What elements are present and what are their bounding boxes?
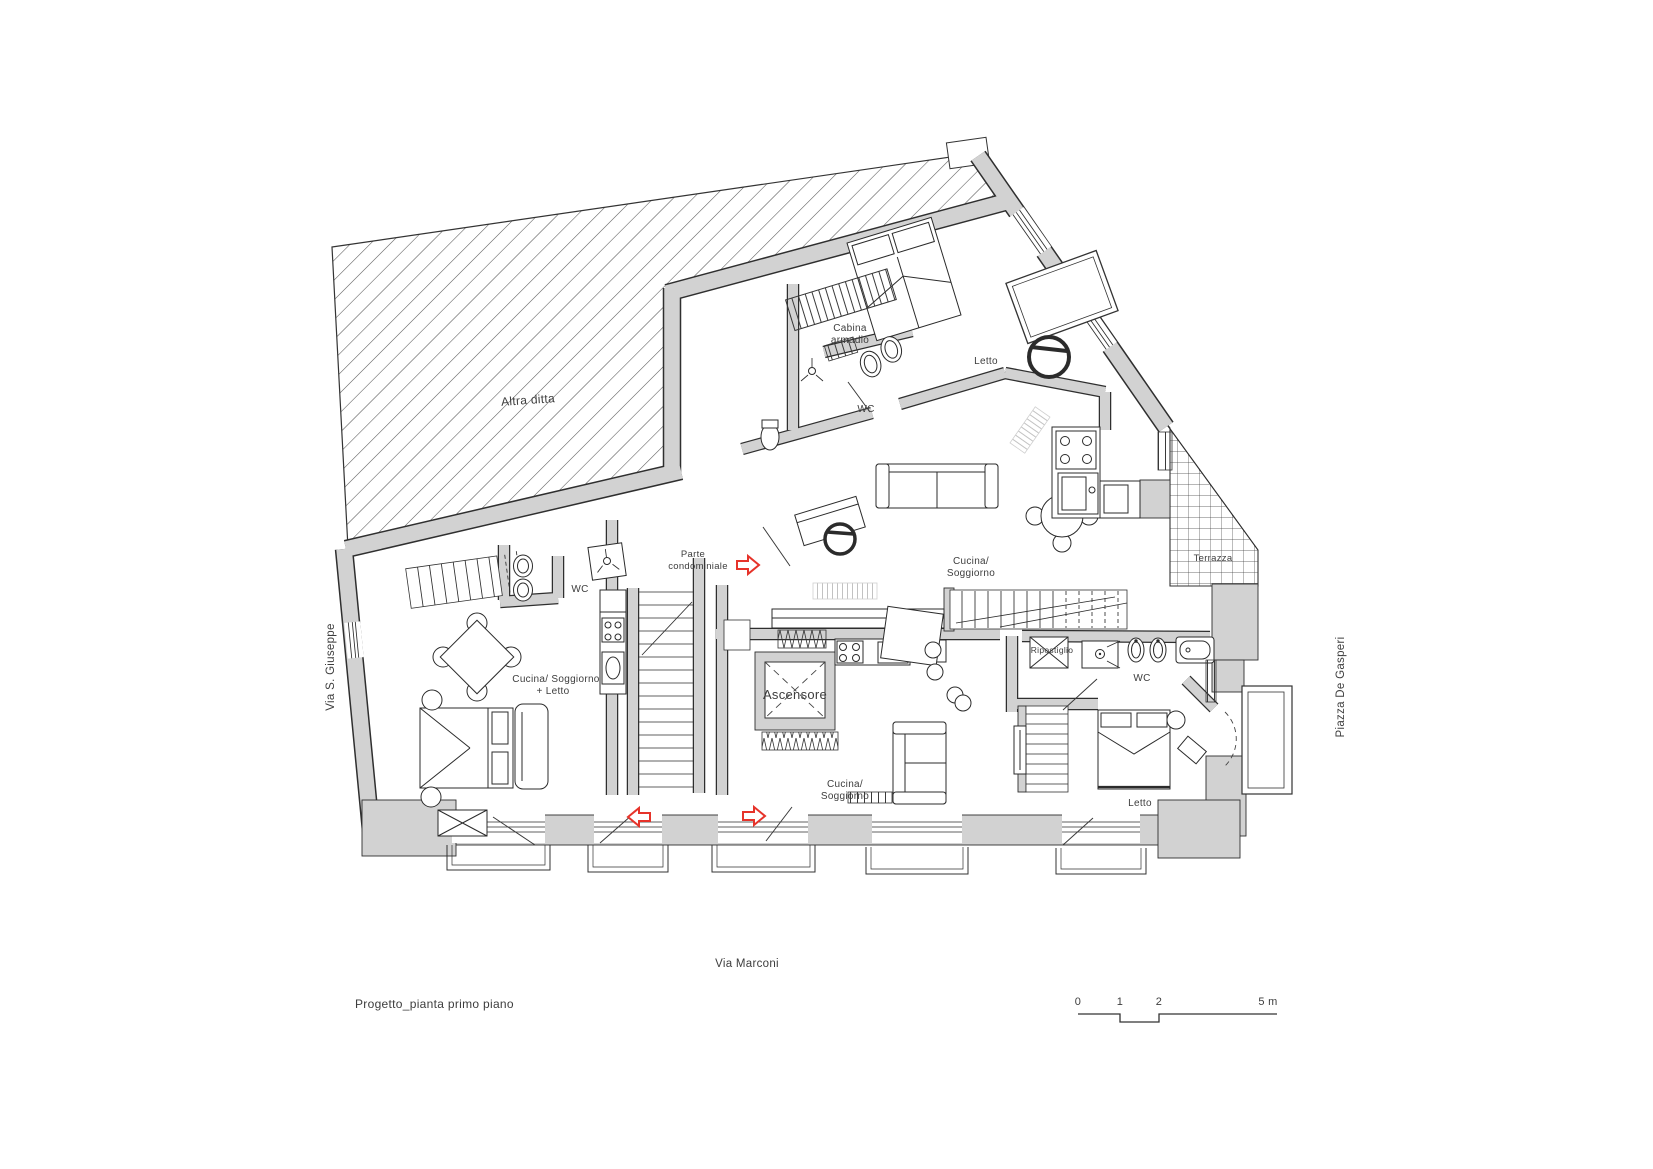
radiator — [1158, 432, 1172, 470]
room-label-wc-east: WC — [1133, 673, 1150, 684]
double-bed — [420, 708, 513, 788]
double-bed — [1098, 710, 1170, 789]
duplex-staircase-right — [950, 590, 1127, 629]
room-label-cucina-west-1: Cucina/ Soggiorno — [512, 674, 600, 685]
bedside-table — [421, 787, 441, 807]
room-label-ripostiglio: Ripostiglio — [1031, 645, 1074, 655]
main-staircase — [638, 592, 694, 787]
street-label-via-s-giuseppe: Via S. Giuseppe — [325, 623, 337, 710]
scale-tick-5m: 5 m — [1258, 996, 1277, 1008]
room-label-cucina-east-1: Cucina/ — [953, 556, 989, 567]
floor-plan-canvas: Altra ditta Cabina armadio Letto WC Part… — [0, 0, 1653, 1169]
room-label-cucina-south-1: Cucina/ — [827, 779, 863, 790]
toilet — [761, 420, 779, 450]
room-label-parte-condominiale-2: condominiale — [668, 561, 728, 572]
room-label-letto-ne: Letto — [974, 356, 998, 367]
chest-crossed — [438, 810, 487, 836]
room-label-cabina-armadio-1: Cabina — [833, 323, 867, 334]
desk — [1014, 726, 1026, 774]
bedside-table — [422, 690, 442, 710]
elevator — [724, 620, 838, 750]
armchair — [1029, 337, 1069, 377]
room-label-cucina-east-2: Soggiorno — [947, 568, 995, 579]
small-sofa — [515, 704, 548, 789]
room-label-terrazza: Terrazza — [1194, 553, 1233, 564]
curved-chair — [825, 524, 855, 554]
room-label-ascensore: Ascensore — [763, 687, 827, 702]
floor-plan-page: Altra ditta Cabina armadio Letto WC Part… — [0, 0, 1653, 1169]
scale-tick-2: 2 — [1156, 996, 1162, 1008]
radiator — [1206, 660, 1216, 702]
magazine-rack — [1178, 736, 1207, 764]
dining-table-square — [433, 613, 521, 701]
drawing-title: Progetto_pianta primo piano — [355, 997, 514, 1011]
balconies — [447, 845, 1146, 874]
toilets — [514, 555, 533, 601]
doormat — [1010, 407, 1050, 453]
kitchen-counter — [1052, 427, 1140, 518]
se-staircase — [1026, 706, 1068, 792]
room-label-wc-west: WC — [571, 584, 588, 595]
shower — [588, 543, 626, 580]
shower-symbol — [801, 358, 823, 381]
room-label-wc-ne: WC — [857, 404, 874, 415]
scale-tick-0: 0 — [1075, 996, 1081, 1008]
sofa — [876, 464, 998, 508]
vent-grill — [762, 732, 838, 750]
room-label-parte-condominiale-1: Parte — [681, 549, 705, 560]
entrance-arrow-icon — [737, 556, 759, 574]
street-label-via-marconi: Via Marconi — [715, 958, 779, 970]
doormat — [813, 583, 877, 599]
room-label-cabina-armadio-2: armadio — [831, 335, 869, 346]
bathtub — [1176, 637, 1214, 663]
kitchen-counter — [600, 590, 626, 694]
street-label-piazza-de-gasperi: Piazza De Gasperi — [1335, 637, 1347, 738]
bedside-table — [1167, 711, 1185, 729]
vent-grill — [778, 630, 826, 648]
room-label-cucina-south-2: Soggiorno — [821, 791, 869, 802]
scale-tick-1: 1 — [1117, 996, 1123, 1008]
shower — [1082, 641, 1120, 668]
room-label-letto-se: Letto — [1128, 798, 1152, 809]
sofa — [893, 722, 946, 804]
scale-bar: 0 1 2 5 m — [1075, 996, 1278, 1022]
room-label-cucina-west-2: + Letto — [537, 686, 570, 697]
